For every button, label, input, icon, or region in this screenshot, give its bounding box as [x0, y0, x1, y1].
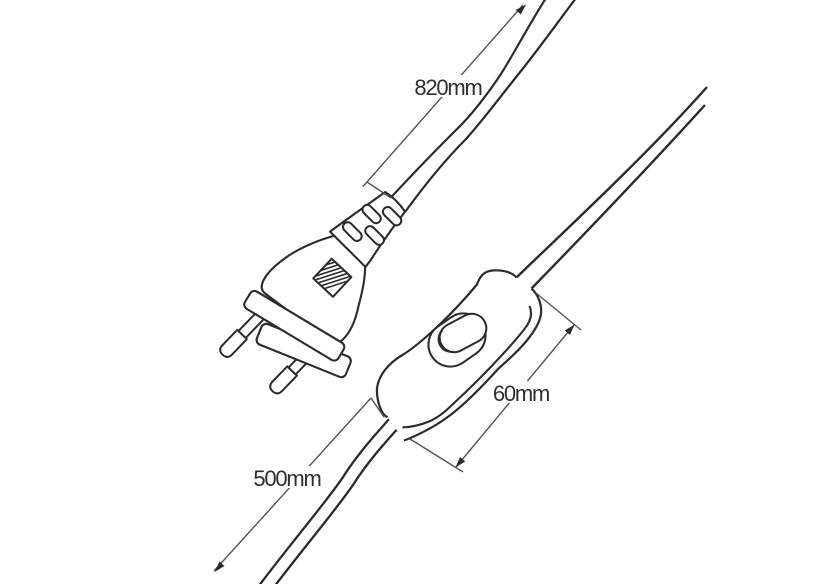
svg-text:60mm: 60mm [493, 381, 549, 406]
svg-text:500mm: 500mm [253, 466, 320, 491]
svg-text:820mm: 820mm [414, 75, 481, 100]
